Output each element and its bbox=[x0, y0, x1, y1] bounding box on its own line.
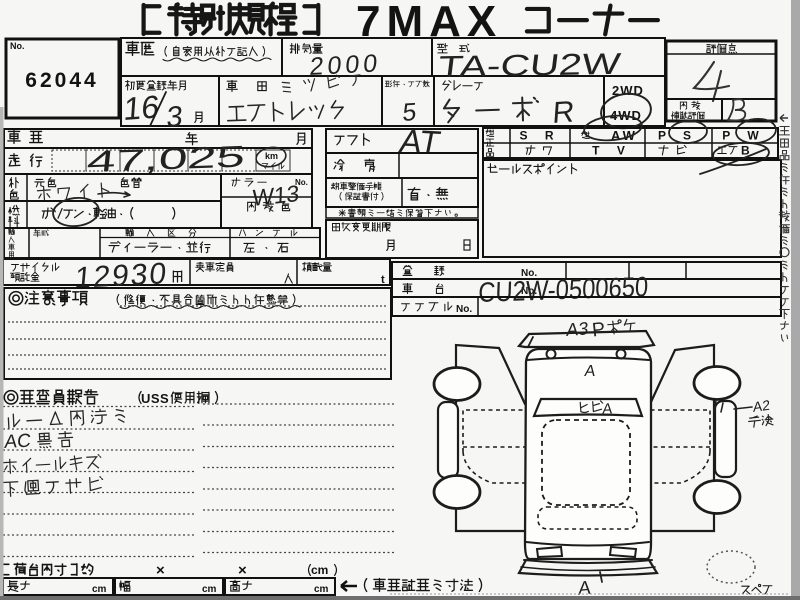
svg-text:cm: cm bbox=[314, 584, 329, 595]
svg-text:×: × bbox=[156, 562, 165, 579]
svg-text:16: 16 bbox=[123, 88, 161, 127]
svg-text:S R: S R bbox=[519, 129, 560, 143]
svg-text:A2: A2 bbox=[753, 397, 770, 415]
svg-text:P: P bbox=[591, 318, 606, 341]
svg-text:62044: 62044 bbox=[25, 69, 98, 92]
svg-text:TA-CU2W: TA-CU2W bbox=[436, 48, 623, 84]
svg-text:cm: cm bbox=[202, 584, 217, 595]
svg-text:T V: T V bbox=[592, 144, 632, 158]
svg-text:km: km bbox=[265, 151, 278, 161]
svg-text:P W: P W bbox=[722, 129, 765, 143]
svg-text:×: × bbox=[238, 562, 247, 579]
svg-text:12930: 12930 bbox=[73, 257, 169, 295]
svg-text:A3: A3 bbox=[566, 318, 589, 340]
svg-text:cm: cm bbox=[92, 584, 107, 595]
svg-text:No.: No. bbox=[10, 41, 25, 51]
svg-text:7MAX: 7MAX bbox=[356, 0, 502, 46]
svg-text:CU2W-0500650: CU2W-0500650 bbox=[478, 271, 649, 308]
svg-text:P S: P S bbox=[658, 129, 698, 143]
svg-text:cm: cm bbox=[311, 563, 328, 577]
svg-text:AC: AC bbox=[4, 431, 32, 453]
svg-text:t: t bbox=[381, 274, 385, 286]
svg-text:R: R bbox=[552, 95, 576, 130]
svg-text:USS: USS bbox=[141, 391, 169, 406]
svg-text:W13: W13 bbox=[252, 180, 300, 211]
svg-text:2000: 2000 bbox=[308, 49, 382, 81]
svg-text:AT: AT bbox=[396, 123, 443, 162]
svg-text:No.: No. bbox=[456, 304, 472, 315]
